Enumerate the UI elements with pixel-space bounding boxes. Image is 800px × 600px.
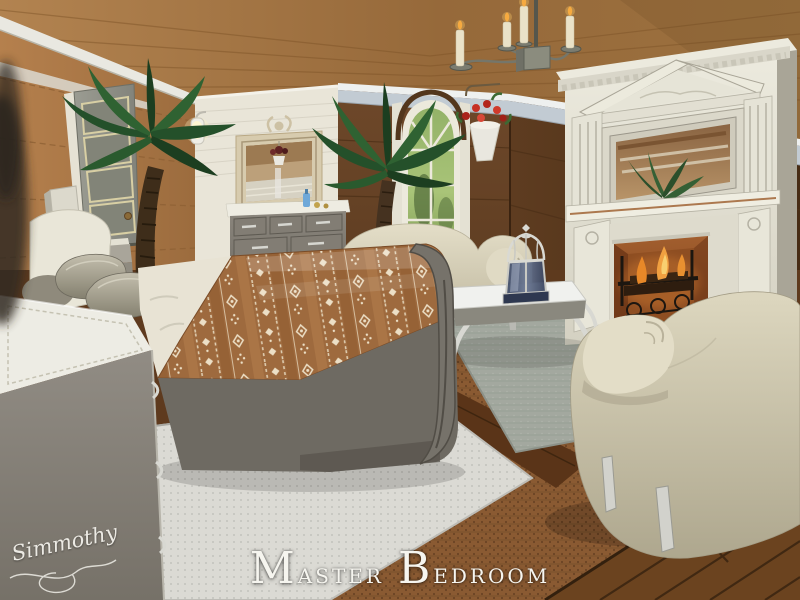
door-knob bbox=[125, 213, 132, 220]
caption-word-1: Master bbox=[250, 543, 384, 594]
screenshot-root: MasterBedroom Simmothy bbox=[0, 0, 800, 600]
artist-signature: Simmothy bbox=[4, 538, 134, 598]
caption-word-2: Bedroom bbox=[398, 543, 550, 594]
